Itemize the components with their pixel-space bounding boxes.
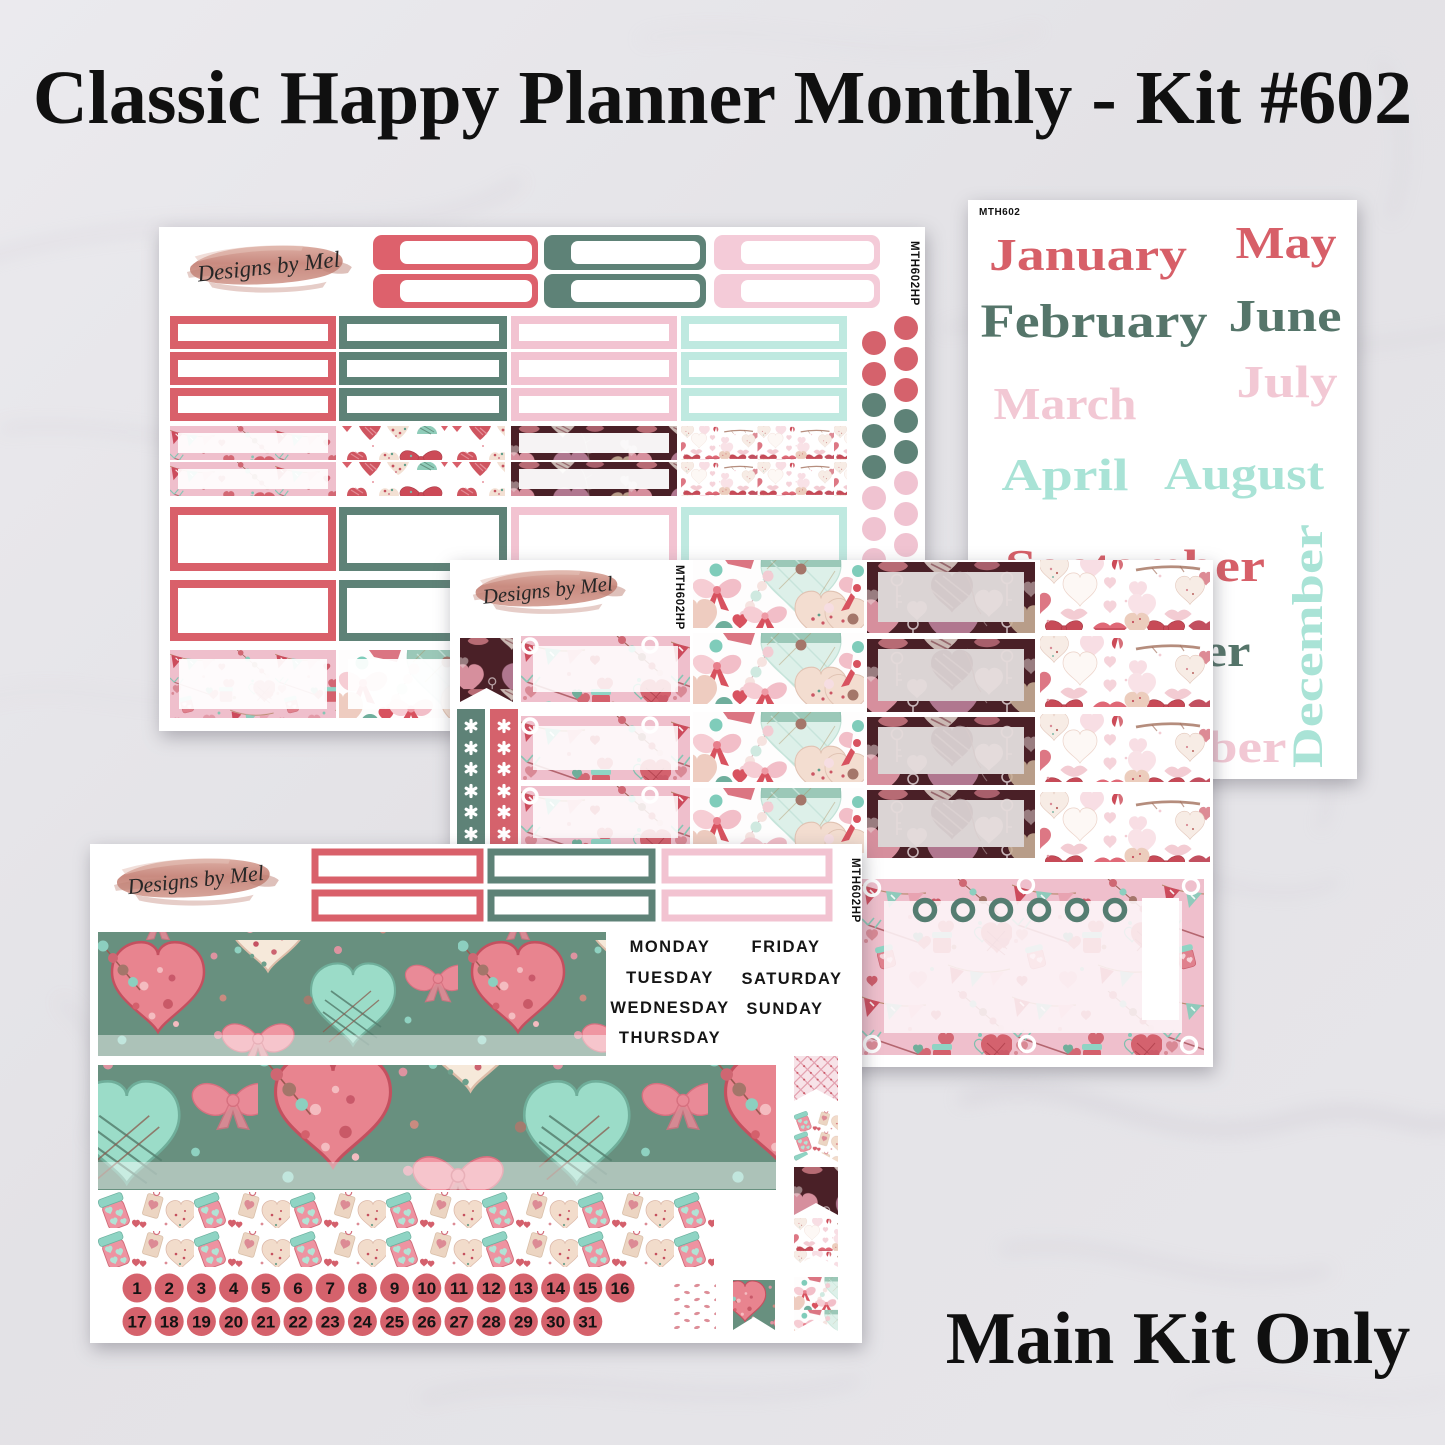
svg-text:SATURDAY: SATURDAY <box>742 970 843 988</box>
svg-text:22: 22 <box>289 1313 308 1332</box>
svg-text:15: 15 <box>578 1279 597 1298</box>
svg-text:30: 30 <box>546 1313 565 1332</box>
svg-text:16: 16 <box>611 1279 630 1298</box>
svg-text:19: 19 <box>192 1313 211 1332</box>
svg-text:3: 3 <box>197 1279 206 1298</box>
svg-text:4: 4 <box>229 1279 239 1298</box>
svg-text:14: 14 <box>546 1279 565 1298</box>
svg-text:24: 24 <box>353 1313 372 1332</box>
svg-text:1: 1 <box>132 1279 141 1298</box>
svg-text:23: 23 <box>321 1313 340 1332</box>
svg-text:10: 10 <box>417 1279 436 1298</box>
svg-text:27: 27 <box>450 1313 469 1332</box>
svg-text:31: 31 <box>578 1313 597 1332</box>
svg-text:July: July <box>1237 356 1338 407</box>
svg-text:February: February <box>981 295 1208 348</box>
svg-text:MTH602HP: MTH602HP <box>849 858 861 923</box>
svg-text:MTH602HP: MTH602HP <box>908 241 920 306</box>
svg-text:MONDAY: MONDAY <box>630 938 711 956</box>
svg-text:8: 8 <box>358 1279 367 1298</box>
svg-text:June: June <box>1229 290 1342 341</box>
svg-text:March: March <box>994 378 1137 429</box>
svg-text:21: 21 <box>256 1313 275 1332</box>
svg-text:January: January <box>989 229 1187 280</box>
svg-text:25: 25 <box>385 1313 404 1332</box>
svg-text:May: May <box>1236 217 1337 268</box>
svg-text:THURSDAY: THURSDAY <box>619 1029 721 1047</box>
svg-text:20: 20 <box>224 1313 243 1332</box>
svg-text:9: 9 <box>390 1279 399 1298</box>
svg-text:12: 12 <box>482 1279 501 1298</box>
svg-text:SUNDAY: SUNDAY <box>746 1000 823 1018</box>
svg-text:December: December <box>1285 524 1332 768</box>
svg-text:MTH602HP: MTH602HP <box>673 565 685 630</box>
svg-text:5: 5 <box>261 1279 270 1298</box>
svg-text:7: 7 <box>325 1279 334 1298</box>
svg-text:13: 13 <box>514 1279 533 1298</box>
svg-text:26: 26 <box>417 1313 436 1332</box>
svg-text:April: April <box>1002 449 1129 500</box>
svg-text:18: 18 <box>160 1313 179 1332</box>
svg-text:TUESDAY: TUESDAY <box>626 969 714 987</box>
svg-text:MTH602: MTH602 <box>979 207 1020 218</box>
svg-text:11: 11 <box>450 1279 468 1298</box>
svg-text:August: August <box>1164 448 1325 499</box>
svg-text:28: 28 <box>482 1313 501 1332</box>
svg-text:6: 6 <box>293 1279 302 1298</box>
svg-text:17: 17 <box>128 1313 147 1332</box>
svg-text:WEDNESDAY: WEDNESDAY <box>610 999 729 1017</box>
svg-text:FRIDAY: FRIDAY <box>752 938 821 956</box>
svg-text:2: 2 <box>164 1279 173 1298</box>
svg-text:29: 29 <box>514 1313 533 1332</box>
